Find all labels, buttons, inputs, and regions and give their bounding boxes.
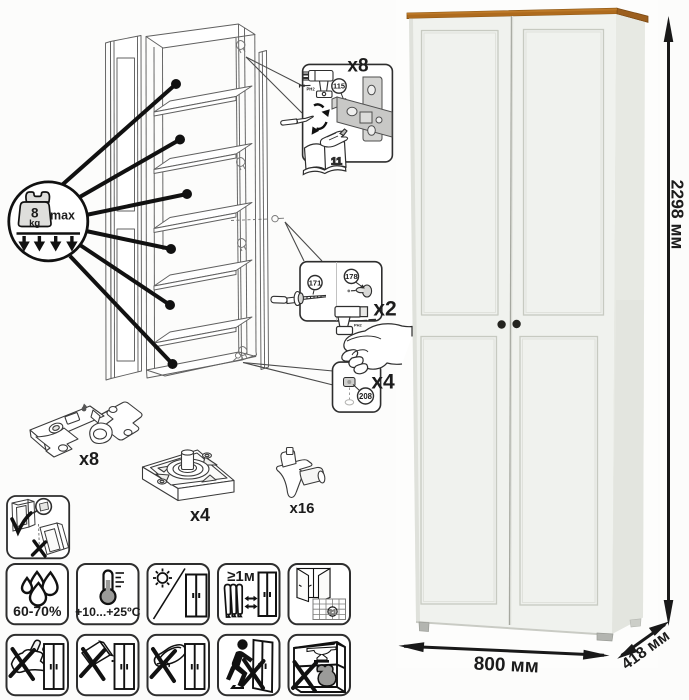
svg-text:max: max	[50, 209, 75, 223]
svg-text:2298 мм: 2298 мм	[668, 180, 688, 250]
svg-text:x8: x8	[79, 449, 99, 469]
svg-text:60-70%: 60-70%	[13, 603, 62, 619]
svg-text:115: 115	[333, 82, 345, 91]
svg-text:PH2: PH2	[307, 87, 316, 92]
svg-text:x4: x4	[190, 505, 210, 525]
svg-text:21: 21	[329, 609, 337, 616]
svg-text:11: 11	[331, 156, 342, 168]
svg-text:x8: x8	[347, 56, 368, 77]
svg-text:x2: x2	[373, 298, 396, 321]
svg-text:≥1м: ≥1м	[227, 568, 255, 585]
svg-text:kg: kg	[29, 218, 40, 229]
svg-text:171: 171	[309, 278, 322, 287]
svg-text:PH2: PH2	[354, 323, 363, 328]
svg-text:x4: x4	[371, 371, 395, 394]
svg-text:800 мм: 800 мм	[473, 654, 539, 678]
svg-text:+10...+25ºC: +10...+25ºC	[75, 605, 140, 619]
svg-text:178: 178	[345, 272, 358, 281]
svg-text:x16: x16	[289, 500, 314, 517]
